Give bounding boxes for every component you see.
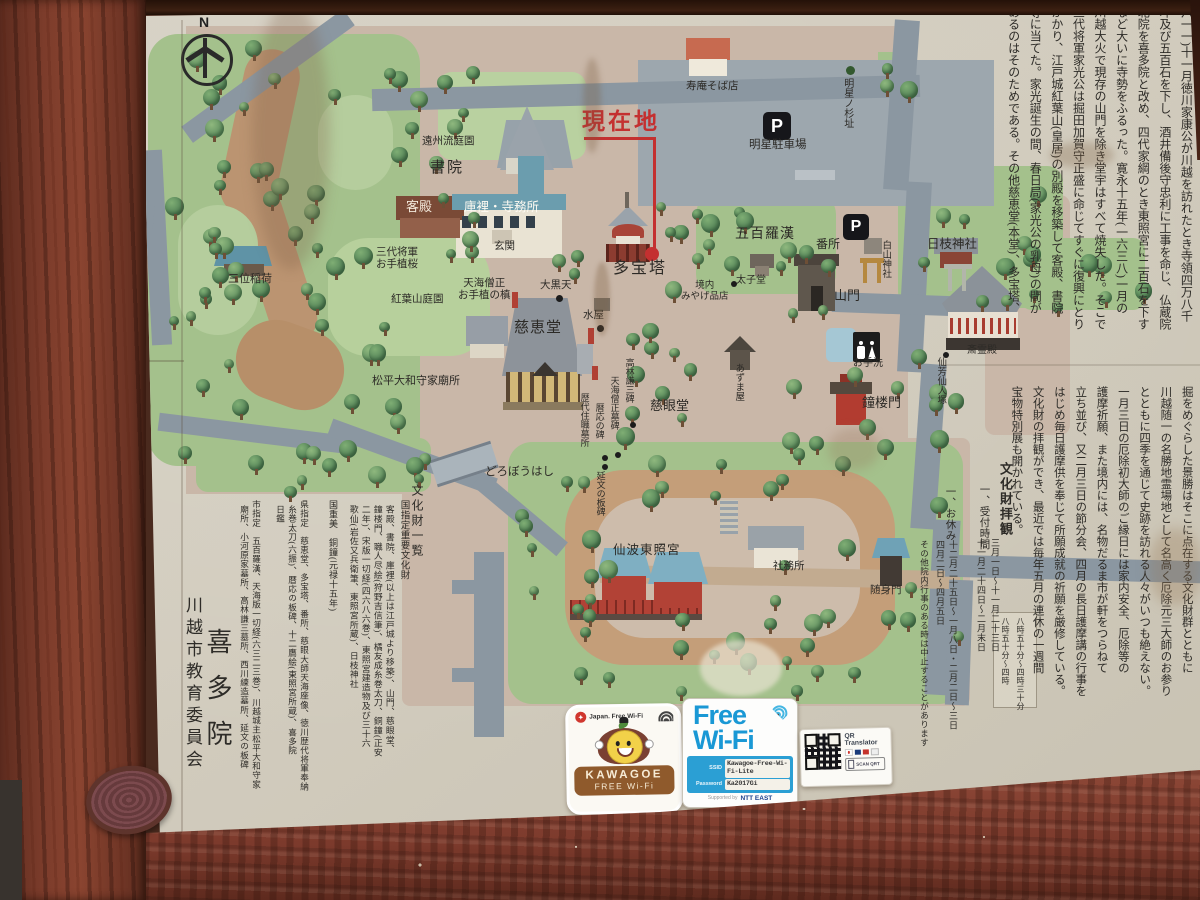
tree-icon <box>552 254 566 268</box>
tree-icon <box>561 476 573 488</box>
grounds-text-block: その緑は市民にとって貴重な憩いの場となっており池や掘をめぐらした景勝はそこに点在… <box>1005 386 1200 716</box>
tree-icon <box>905 582 917 594</box>
label-kyakuden: 客殿 <box>406 199 432 214</box>
building-soba-body <box>689 59 727 76</box>
parking-mark <box>795 170 835 180</box>
text-column: とともに四季を通じて史跡を訪れる人々がいつも絶えない。 <box>1133 386 1154 716</box>
tree-icon <box>770 595 781 606</box>
legend-line: 二年)、宋版一切経(四六八六巻)、東照宮建造物及び三十六 <box>361 505 370 748</box>
tree-icon <box>582 530 600 548</box>
reception-hours: 八時五十分～四時三十分 <box>1016 617 1024 711</box>
tree-icon <box>891 381 904 394</box>
history-text-block: (慈眼大師)が第二十七世の法統をつぐが、同十六年(一六一一)十一月徳川家康公が川… <box>1002 6 1200 378</box>
tree-icon <box>818 305 829 316</box>
tree-icon <box>384 68 396 80</box>
legend-line: 糸巻太刀(六振)、暦応の板碑、十二鷹絵(東照宮所蔵)、喜多院 <box>288 505 297 755</box>
label-enshu: 遠州流庭園 <box>422 136 475 148</box>
tree-icon <box>788 308 799 319</box>
label-tahoto: 多宝塔 <box>613 260 667 279</box>
tree-icon <box>877 439 894 456</box>
parking-icon: P <box>763 112 791 140</box>
tree-icon <box>339 440 357 458</box>
text-column: 一月三日の厄除初大師のご縁日には家内安全、厄除等の <box>1112 386 1133 716</box>
tree-icon <box>669 348 679 358</box>
holiday-period: 四月二日～四月五日 <box>935 540 944 626</box>
tree-icon <box>838 539 856 557</box>
tree-icon <box>438 193 449 204</box>
label-matsudaira: 松平大和守家廟所 <box>372 375 460 388</box>
tree-icon <box>232 399 249 416</box>
building-jikeido-stairs <box>577 344 593 374</box>
label-ryakuo: 暦応の碑 <box>594 403 605 439</box>
label-shoin: 書院 <box>430 160 464 178</box>
tree-icon <box>665 227 676 238</box>
building-tahoto-finial <box>625 192 629 208</box>
tree-icon <box>948 393 965 410</box>
tree-icon <box>976 295 989 308</box>
tree-icon <box>791 685 802 696</box>
label-sakura: 三代将軍 お手植桜 <box>376 247 418 272</box>
label-soba: 寿庵そば店 <box>686 81 739 93</box>
tree-icon <box>312 243 323 254</box>
tree-icon <box>248 455 264 471</box>
tree-icon <box>625 406 640 421</box>
building-toshogu-body <box>654 582 702 608</box>
tree-icon <box>583 609 596 622</box>
japan-wifi-logo-icon <box>575 712 586 723</box>
tree-icon <box>726 632 745 651</box>
tree-icon <box>571 250 584 263</box>
label-dorobo: どろぼうはし <box>485 466 554 480</box>
legend-line: 廟所、小河原家墓所、高林謙三墓所、西川練造墓所、延文の板碑 <box>240 505 249 769</box>
label-enbun: 延文の板碑 <box>595 471 606 516</box>
tree-icon <box>626 333 640 347</box>
label-senpo: 仙芳仙人塚 <box>934 357 945 405</box>
tree-icon <box>297 475 307 485</box>
label-daikoku: 大黒天 <box>540 280 572 292</box>
torii-hakusan <box>863 263 867 283</box>
tree-icon <box>284 486 297 499</box>
building-jikeido-annex <box>466 316 508 346</box>
tree-icon <box>782 432 800 450</box>
you-are-here-dot <box>645 247 659 261</box>
tree-icon <box>692 253 704 265</box>
tree-icon <box>224 359 234 369</box>
tree-icon <box>405 122 418 135</box>
tree-icon <box>764 618 777 631</box>
ntt-east-logo: NTT EAST <box>740 795 772 802</box>
tree-icon <box>224 284 242 302</box>
label-shamusho: 社務所 <box>773 561 805 573</box>
tree-icon <box>580 627 591 638</box>
building-jikeido-body <box>506 372 580 404</box>
tree-icon <box>578 476 591 489</box>
legend-line: 市指定 五百羅漢、天海版一切経(六三二三巻)、川越城主松平大和守家 <box>252 500 261 789</box>
tree-icon <box>379 322 390 333</box>
label-bansho: 番所 <box>816 237 840 251</box>
label-zuishin: 随身門 <box>870 585 902 597</box>
marker-myojo-sugi <box>846 66 855 75</box>
committee-name: 川越市教育委員会 <box>184 596 201 772</box>
text-column: 北院を喜多院と改め、四代家綱のとき東照宮に二百石を下す <box>1132 6 1154 378</box>
text-column: かかり、江戸城紅葉山(皇居)の別殿を移築して客殿、書院 <box>1045 6 1067 378</box>
compass-north-label: N <box>199 14 209 30</box>
pond <box>826 328 856 362</box>
language-flags-icon <box>845 748 887 756</box>
tree-icon <box>328 89 340 101</box>
road <box>452 580 478 594</box>
tree-icon <box>709 650 719 660</box>
qr-translator-title: QR Translator <box>844 732 886 747</box>
legend-title: 文化財一覧 <box>411 484 423 559</box>
building-kyakuden-body <box>400 218 460 238</box>
tree-icon <box>599 560 618 579</box>
tree-icon <box>882 63 893 74</box>
marker-enbun <box>602 464 608 470</box>
lantern <box>592 366 598 380</box>
tree-icon <box>178 446 192 460</box>
holiday-period: 十二月二十五日～一月八日・二月二日～三日 <box>948 540 957 730</box>
tree-icon <box>859 419 876 436</box>
tree-icon <box>390 414 406 430</box>
tree-icon <box>288 226 303 241</box>
text-column: 立ち並び、又二月三日の節分会、四月の長日護摩講の行事を <box>1069 386 1090 716</box>
tree-icon <box>569 268 580 279</box>
supported-by-label: Supported by <box>708 795 738 801</box>
label-rakan: 五百羅漢 <box>735 227 795 244</box>
torii-hie <box>962 269 966 291</box>
label-hie: 日枝神社 <box>927 237 977 252</box>
tree-icon <box>369 344 386 361</box>
wifi-icon <box>658 710 673 721</box>
marker-mizuya <box>597 325 604 332</box>
tree-icon <box>900 612 915 627</box>
tree-icon <box>466 66 480 80</box>
text-column: あるのはそのためである。その他慈恵堂(本堂)、多宝塔、 <box>1002 6 1024 378</box>
legend-line: 鐘楼門、職人尽絵(狩野吉信筆)、橘友成糸巻太刀、銅鐘(正安 <box>373 505 382 757</box>
torii-hie <box>948 269 952 291</box>
tree-icon <box>196 379 210 393</box>
text-column: はじめ毎日護摩供を奉じて所願成就の祈願を厳修している。 <box>1048 386 1069 716</box>
tree-icon <box>809 436 824 451</box>
tree-icon <box>848 667 861 680</box>
label-sanmon: 山門 <box>834 288 860 303</box>
tree-icon <box>391 147 407 163</box>
tree-icon <box>519 519 533 533</box>
legend-kokujubi: 国重美 銅鐘(元禄十五年) <box>328 500 337 612</box>
label-maki: 天海僧正 お手植の槙 <box>458 278 511 303</box>
holiday-label: 一、お休み <box>944 486 955 541</box>
label-miyage: 境内 みやげ品店 <box>681 281 729 303</box>
legend-line: 歌仙(岩佐又兵衛筆、東照宮所蔵)、日枝神社 <box>349 505 358 689</box>
label-kobayashi: 高林謙三碑 <box>624 358 635 403</box>
tree-icon <box>301 283 313 295</box>
label-taishi: 太子堂 <box>736 275 766 287</box>
kawagoe-free-wifi-sticker: Japan. Free Wi-Fi KAWAGOE FREE Wi-Fi <box>565 703 683 815</box>
tree-icon <box>676 686 687 697</box>
label-mizuya: 水屋 <box>583 310 604 322</box>
tree-icon <box>208 227 221 240</box>
qr-code-icon <box>804 733 841 770</box>
tree-icon <box>881 610 896 625</box>
building-jikeido-annex-body <box>470 344 504 358</box>
building-zuishin-roof <box>872 538 910 558</box>
marker-tenkai-bohi <box>615 452 621 458</box>
label-genkan: 玄関 <box>494 241 515 253</box>
kawagoe-mascot <box>568 721 679 765</box>
ssid-value: Kawagoe-Free-Wi-Fi-Lite <box>725 759 790 778</box>
tree-icon <box>684 363 697 376</box>
information-board-photo: N Japan. Free Wi-Fi KAWAGOE FREE Wi-Fi <box>0 0 1200 900</box>
tree-icon <box>642 323 659 340</box>
free-wifi-word2: Wi-Fi <box>693 728 797 753</box>
label-shoro: 鐘楼門 <box>862 395 901 410</box>
map-board: N Japan. Free Wi-Fi KAWAGOE FREE Wi-Fi <box>0 0 1200 900</box>
kawagoe-wifi-subtitle: FREE Wi-Fi <box>574 780 674 792</box>
tree-icon <box>793 448 806 461</box>
tree-icon <box>209 243 221 255</box>
label-jigen: 慈眼堂 <box>650 398 689 413</box>
building-soba-roof <box>686 38 730 60</box>
label-otearai: お手洗 <box>853 358 883 370</box>
password-label: Password <box>690 781 722 787</box>
tree-icon <box>820 609 836 625</box>
label-toshogu: 仙波東照宮 <box>613 543 681 558</box>
label-hakusan: 白山神社 <box>879 240 890 278</box>
tree-icon <box>354 247 372 265</box>
legend-national-header: 国指定重要文化財 <box>398 500 408 580</box>
text-column: 等に当てた。家光誕生の間、春日局(家光公の乳母)の間が <box>1024 6 1046 378</box>
building-tahoto-mid <box>616 236 640 244</box>
compass-rose-icon: N <box>175 14 235 86</box>
road <box>474 552 504 737</box>
tree-icon <box>584 569 599 584</box>
text-column: など大いに寺勢をふるった。寛永十五年(一六三八)一月の <box>1110 6 1132 378</box>
text-column: 三代将軍家光公は掘田加賀守正盛に命じてすぐに復興にとり <box>1067 6 1089 378</box>
legend-line: 客殿、書院、庫裡(以上は江戸城より移築)、山門、慈眼堂、 <box>385 505 394 754</box>
tree-icon <box>603 672 615 684</box>
marker-ryakuo <box>602 455 608 461</box>
tree-icon <box>326 257 345 276</box>
legend-line: 日鑑 <box>276 505 285 523</box>
label-genzaichi: 現在地 <box>582 108 660 135</box>
ssid-label: SSID <box>690 765 722 771</box>
text-column: 川越随一の名勝地霊場地として名高く厄除元三大師のお参り <box>1154 386 1175 716</box>
lantern <box>588 328 594 344</box>
text-column: 護摩祈願、また境内には、名物だるま市が軒をつらねて <box>1090 386 1111 716</box>
tree-icon <box>740 653 758 671</box>
tree-icon <box>665 281 683 299</box>
background-shadow <box>0 780 22 900</box>
label-kuri: 庫裡・寺務所 <box>464 200 539 215</box>
you-are-here-underline <box>584 137 656 140</box>
tree-icon <box>437 75 452 90</box>
tree-icon <box>447 119 462 134</box>
visit-note: その他院内行事のある時は中止することがあります <box>920 540 929 747</box>
visit-info-title: 文化財拝観 <box>999 462 1012 537</box>
tree-icon <box>414 474 424 484</box>
tree-icon <box>212 267 229 284</box>
tree-icon <box>936 208 952 224</box>
tree-icon <box>308 293 326 311</box>
legend-line: 県指定 慈恵堂、多宝塔、番所、慈眼大師天海座像、徳川歴代将軍奉納 <box>300 500 309 791</box>
tree-icon <box>616 427 635 446</box>
wood-frame-top <box>0 0 1200 15</box>
wood-frame-left-post <box>0 0 146 900</box>
label-jikeido: 慈恵堂 <box>514 320 562 338</box>
tree-icon <box>655 481 669 495</box>
building-shamusho-roof <box>748 526 804 550</box>
tree-icon <box>675 613 690 628</box>
road <box>452 668 478 682</box>
tree-icon <box>205 119 224 138</box>
tree-icon <box>186 311 196 321</box>
password-value: Ka2017Gi <box>725 779 790 790</box>
label-rekidai: 歴代住職墓所 <box>579 393 590 447</box>
label-tenkaibo: 天海僧正墓碑 <box>609 376 620 430</box>
tree-icon <box>410 91 427 108</box>
label-momiji: 紅葉山庭園 <box>391 294 444 306</box>
label-azumaya: あずま屋 <box>732 363 743 401</box>
tree-icon <box>710 491 721 502</box>
marker-daikokuten <box>556 295 563 302</box>
text-column: 川越大火で現存の山門を除き堂宇はすべて焼失した。そこで <box>1088 6 1110 378</box>
building-shoro-roof <box>830 382 872 394</box>
building-zuishin-body <box>880 556 902 586</box>
tree-icon <box>900 81 918 99</box>
text-column: 文化財の拝観ができ、最近では毎年五月の連休の一週間 <box>1026 386 1047 716</box>
tree-icon <box>763 481 779 497</box>
reception-period: 三月一日～十一月二十三日 <box>990 538 999 652</box>
reception-hours: 八時五十分～四時 <box>1001 617 1009 685</box>
label-inari: 三位稲荷 <box>228 273 272 286</box>
lantern <box>512 292 518 308</box>
tree-icon <box>673 640 689 656</box>
text-column: 坪及び五百石を下し、酒井備後守忠利に工事を命じ、仏蔵院 <box>1153 6 1175 378</box>
building-jikeido-base <box>503 402 583 410</box>
text-column: 掘をめぐらした景勝はそこに点在する文化財群とともに <box>1175 386 1196 716</box>
label-sairei: 斎霊殿 <box>967 345 997 357</box>
tree-icon <box>458 108 468 118</box>
qr-translator-sticker: QR Translator SCAN QRT <box>799 727 892 787</box>
parking-icon: P <box>843 214 869 240</box>
tree-icon <box>199 287 212 300</box>
label-parking-lot: 明星駐車場 <box>749 139 807 153</box>
you-are-here-line <box>653 137 656 251</box>
scan-qrt-badge: SCAN QRT <box>845 756 885 770</box>
steps <box>720 500 738 534</box>
marker-kobayashi <box>630 422 636 428</box>
tree-icon <box>239 102 249 112</box>
free-wifi-sticker: Free Wi-Fi SSID Kawagoe-Free-Wi-Fi-Lite … <box>682 698 798 808</box>
reception-period: 十一月二十四日～二月末日 <box>976 538 985 652</box>
label-sugi: 明星ノ杉址 <box>841 78 853 128</box>
tree-icon <box>959 214 970 225</box>
tree-icon <box>716 459 727 470</box>
temple-name: 喜多院 <box>204 628 230 766</box>
tree-icon <box>930 430 949 449</box>
kawagoe-wifi-title: KAWAGOE <box>574 768 674 782</box>
tree-icon <box>368 466 386 484</box>
